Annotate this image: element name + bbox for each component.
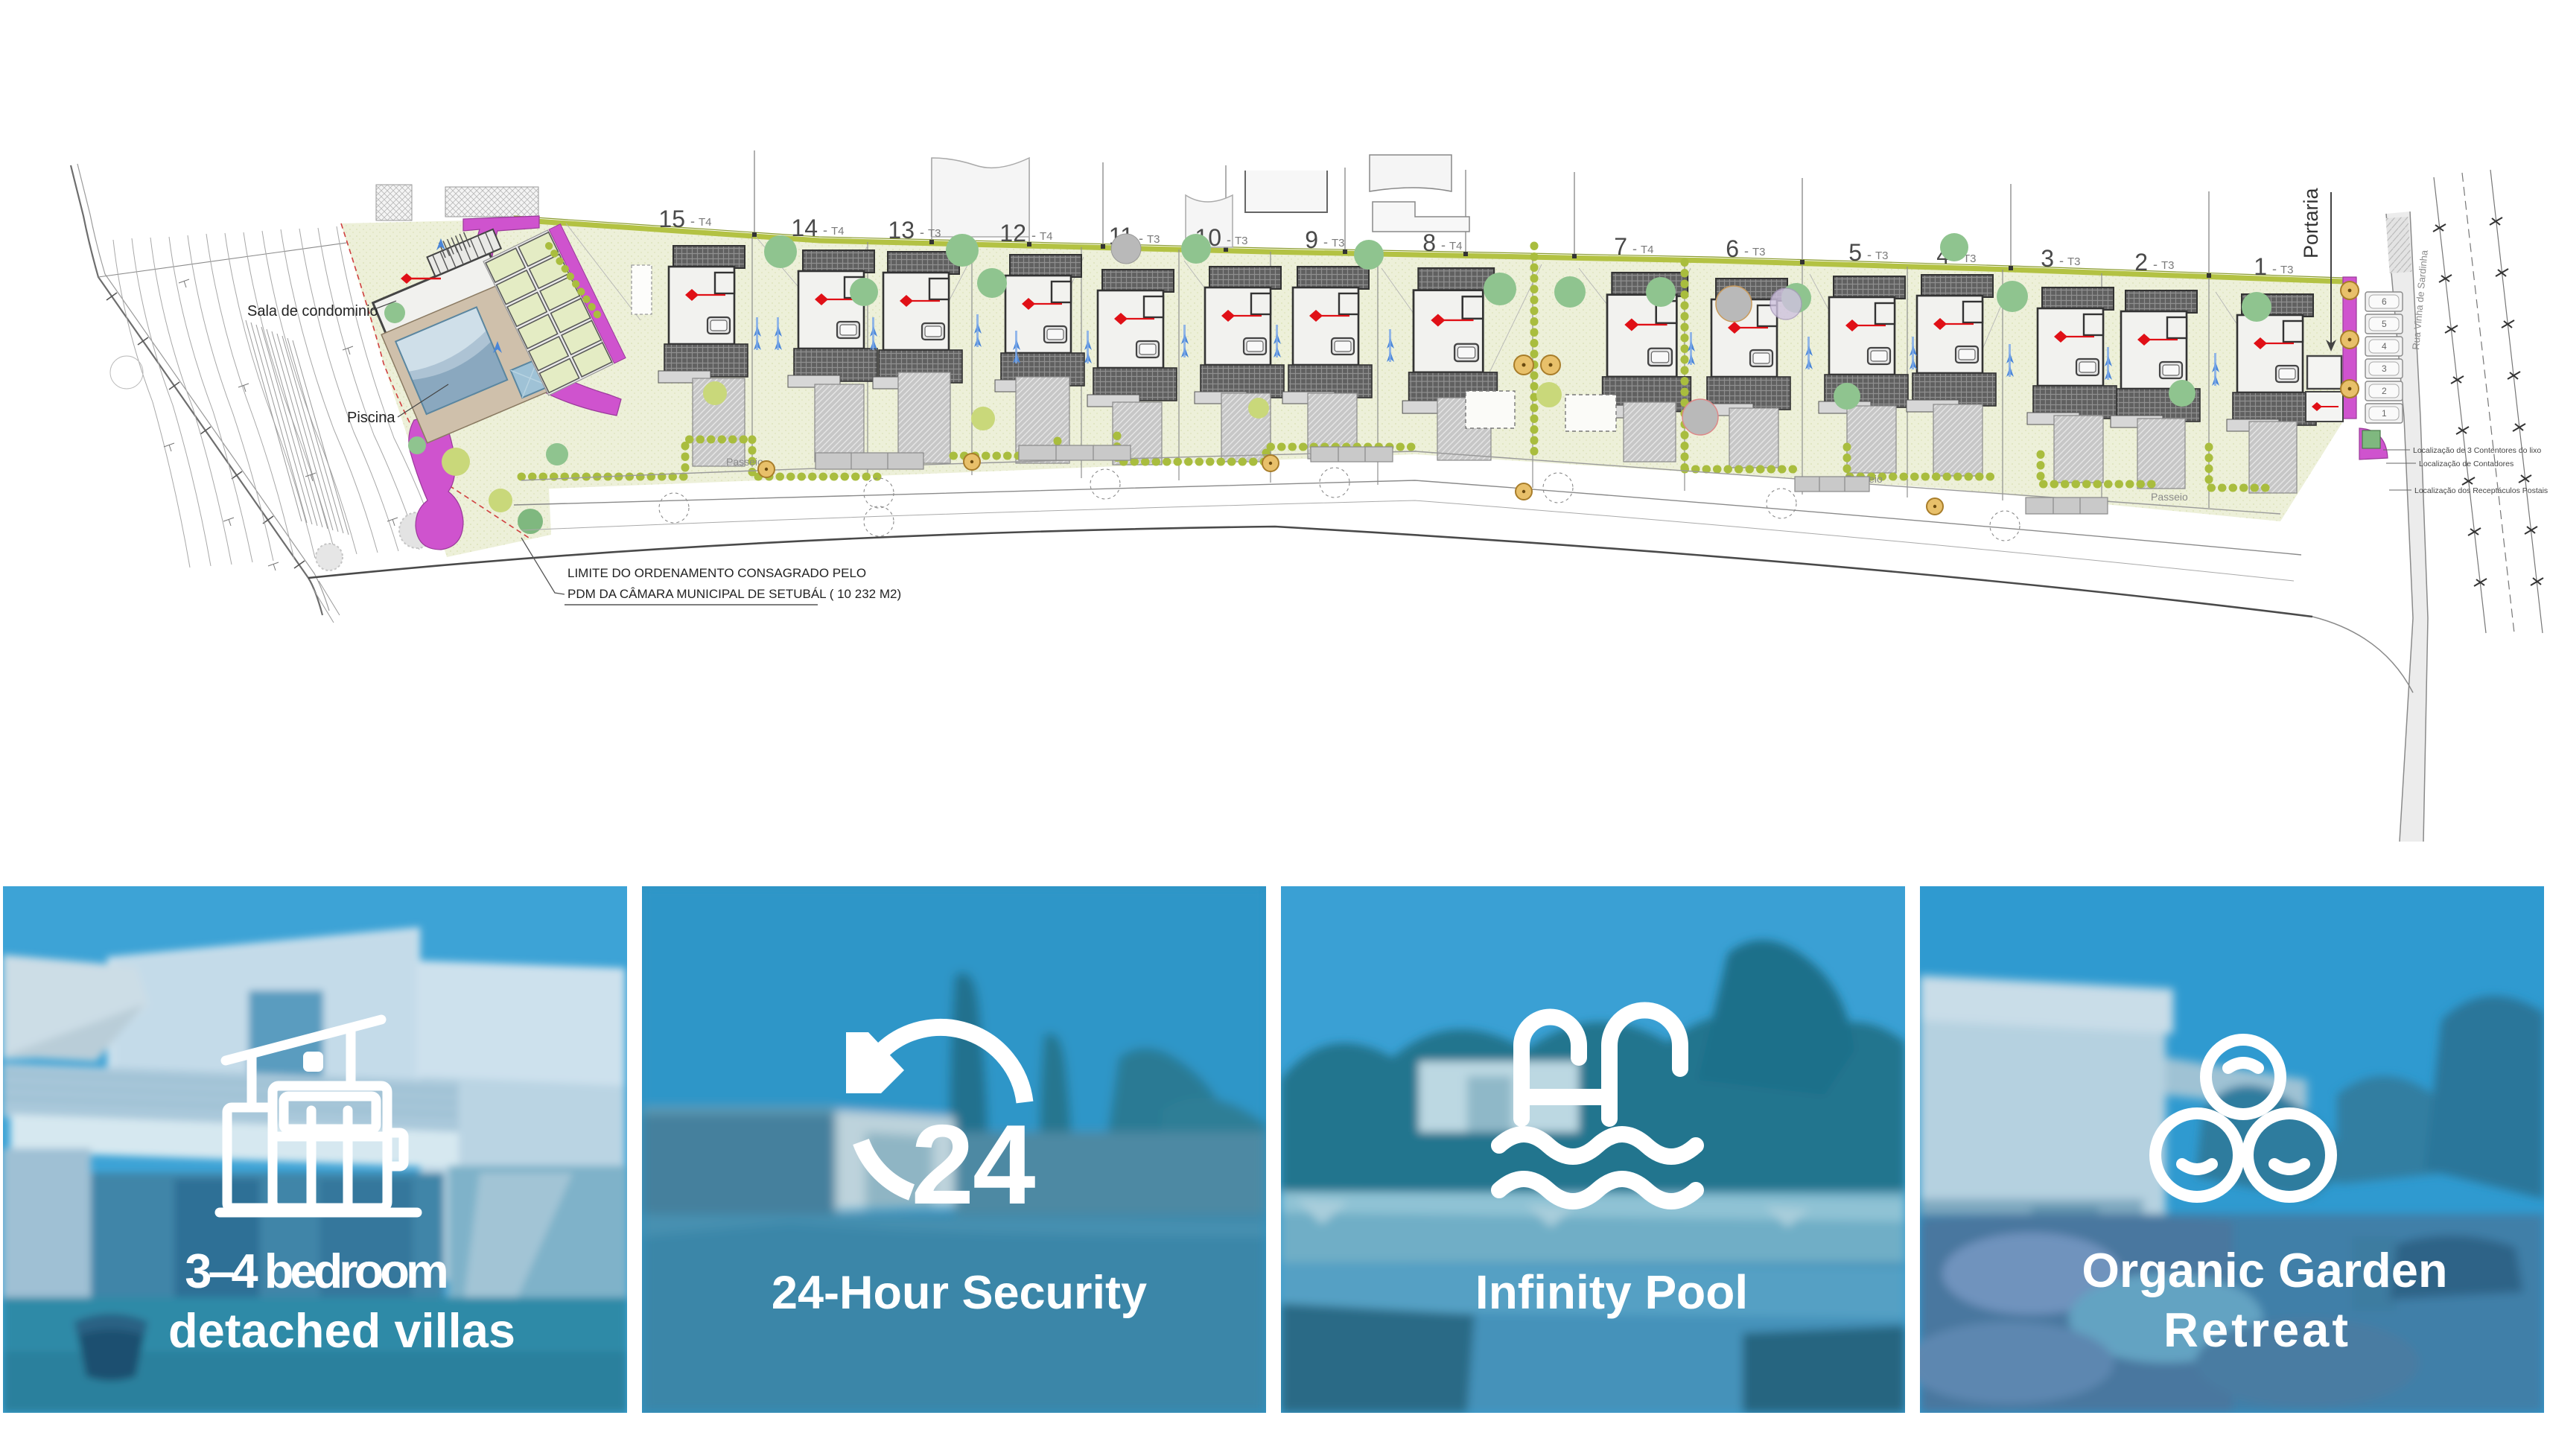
- svg-text:Sala de condominio: Sala de condominio: [247, 303, 378, 320]
- svg-text:8: 8: [1422, 229, 1436, 256]
- svg-text:- T4: - T4: [1031, 228, 1053, 243]
- svg-text:- T3: - T3: [920, 225, 941, 240]
- svg-text:- T3: - T3: [2272, 261, 2294, 276]
- svg-text:- T4: - T4: [1632, 241, 1654, 256]
- svg-text:Localização dos Receptáculos P: Localização dos Receptáculos Postais: [2414, 486, 2548, 495]
- svg-text:4: 4: [2382, 341, 2387, 352]
- svg-text:3: 3: [2382, 363, 2387, 374]
- svg-text:- T4: - T4: [823, 223, 845, 238]
- svg-text:Localização de Contadores: Localização de Contadores: [2419, 460, 2514, 468]
- svg-text:PDM DA CÂMARA MUNICIPAL DE SET: PDM DA CÂMARA MUNICIPAL DE SETUBÁL ( 10 …: [567, 587, 901, 601]
- svg-text:- T3: - T3: [1744, 244, 1766, 258]
- svg-text:14: 14: [791, 214, 818, 241]
- svg-text:15: 15: [658, 206, 685, 232]
- svg-text:24: 24: [911, 1101, 1035, 1228]
- svg-text:Piscina: Piscina: [347, 410, 395, 426]
- svg-text:6: 6: [2382, 296, 2387, 307]
- svg-text:9: 9: [1305, 226, 1318, 253]
- svg-text:Portaria: Portaria: [2300, 187, 2322, 258]
- svg-text:5: 5: [2382, 319, 2387, 329]
- svg-text:- T3: - T3: [1227, 232, 1248, 247]
- svg-text:7: 7: [1614, 233, 1627, 260]
- svg-text:- T3: - T3: [2153, 257, 2175, 272]
- svg-text:- T3: - T3: [1323, 235, 1345, 249]
- svg-text:2: 2: [2382, 386, 2387, 396]
- svg-text:Localização de 3 Contentores d: Localização de 3 Contentores do lixo: [2413, 446, 2541, 455]
- svg-text:- T4: - T4: [1441, 238, 1463, 252]
- svg-text:12: 12: [999, 220, 1026, 247]
- svg-text:3: 3: [2041, 245, 2054, 272]
- svg-text:5: 5: [1848, 239, 1862, 266]
- svg-text:13: 13: [888, 217, 915, 244]
- svg-text:1: 1: [2254, 253, 2267, 280]
- svg-text:1: 1: [2382, 408, 2387, 419]
- svg-text:- T3: - T3: [1139, 231, 1160, 246]
- svg-text:6: 6: [1726, 235, 1739, 262]
- svg-text:LIMITE DO ORDENAMENTO CONSAGRA: LIMITE DO ORDENAMENTO CONSAGRADO PELO: [567, 566, 866, 580]
- svg-text:- T3: - T3: [1867, 247, 1889, 262]
- svg-text:Passeio: Passeio: [2151, 491, 2188, 503]
- svg-text:Passeio: Passeio: [726, 456, 763, 468]
- svg-text:- T4: - T4: [690, 214, 712, 229]
- svg-text:- T3: - T3: [2059, 253, 2081, 268]
- svg-text:2: 2: [2134, 249, 2148, 276]
